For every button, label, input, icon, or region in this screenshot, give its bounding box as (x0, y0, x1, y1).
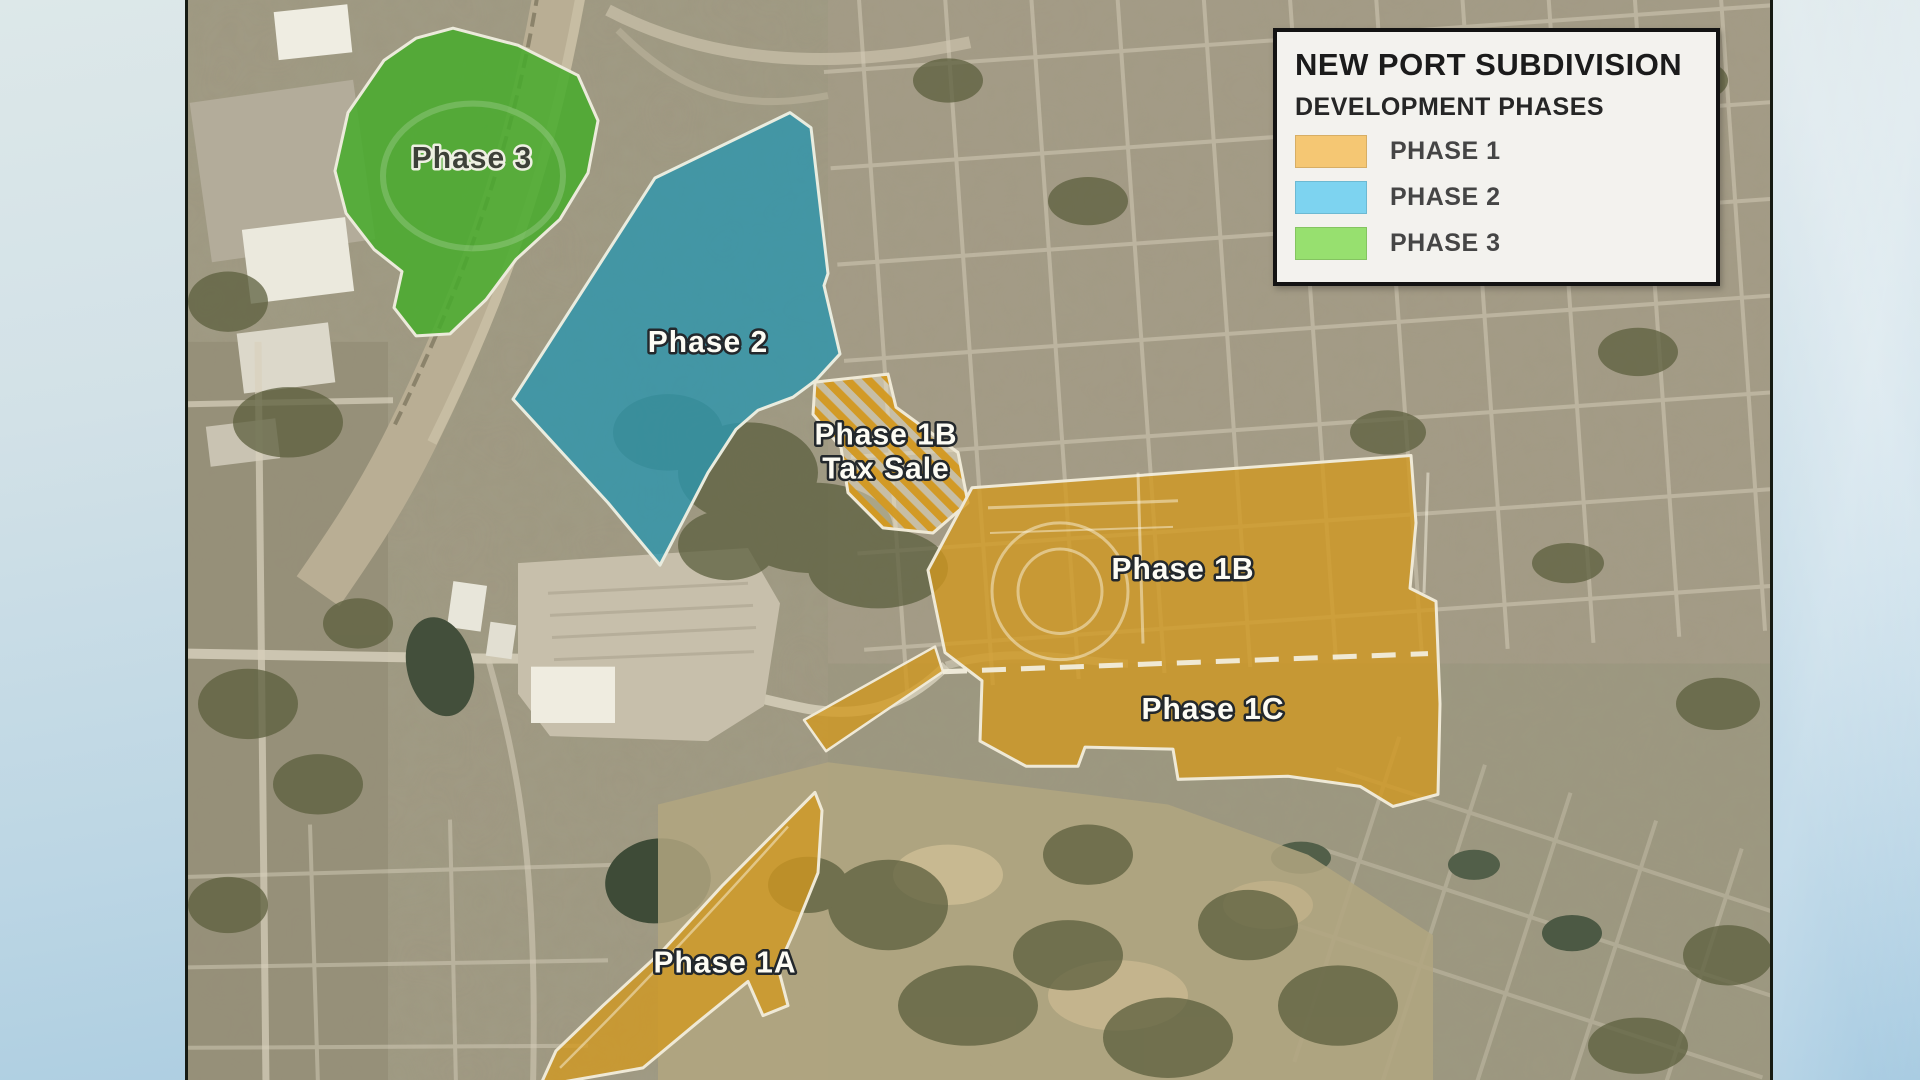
legend-label-phase2: PHASE 2 (1390, 183, 1500, 212)
legend-label-phase1: PHASE 1 (1390, 137, 1500, 166)
phase-2-label: Phase 2 (648, 326, 768, 359)
legend-panel: NEW PORT SUBDIVISION DEVELOPMENT PHASES … (1273, 28, 1720, 286)
page-background: Phase 3 Phase 2 Phase 1B Tax Sale Phase … (0, 0, 1920, 1080)
legend-swatch-phase2 (1295, 181, 1367, 214)
phase-1c-label: Phase 1C (1141, 693, 1284, 726)
legend-row-phase2: PHASE 2 (1295, 181, 1716, 214)
legend-title: NEW PORT SUBDIVISION (1295, 46, 1716, 84)
phase-1b-tax-sale-label-line1: Phase 1B (814, 418, 957, 451)
phase-1b-label: Phase 1B (1111, 553, 1254, 586)
legend-row-phase3: PHASE 3 (1295, 227, 1716, 260)
legend-subtitle: DEVELOPMENT PHASES (1295, 92, 1716, 122)
legend-swatch-phase1 (1295, 135, 1367, 168)
legend-label-phase3: PHASE 3 (1390, 229, 1500, 258)
legend-row-phase1: PHASE 1 (1295, 135, 1716, 168)
legend-swatch-phase3 (1295, 227, 1367, 260)
phase-1a-label: Phase 1A (653, 946, 796, 979)
phase-1b-tax-sale-label-line2: Tax Sale (822, 453, 950, 486)
phase-3-label: Phase 3 (412, 142, 532, 175)
